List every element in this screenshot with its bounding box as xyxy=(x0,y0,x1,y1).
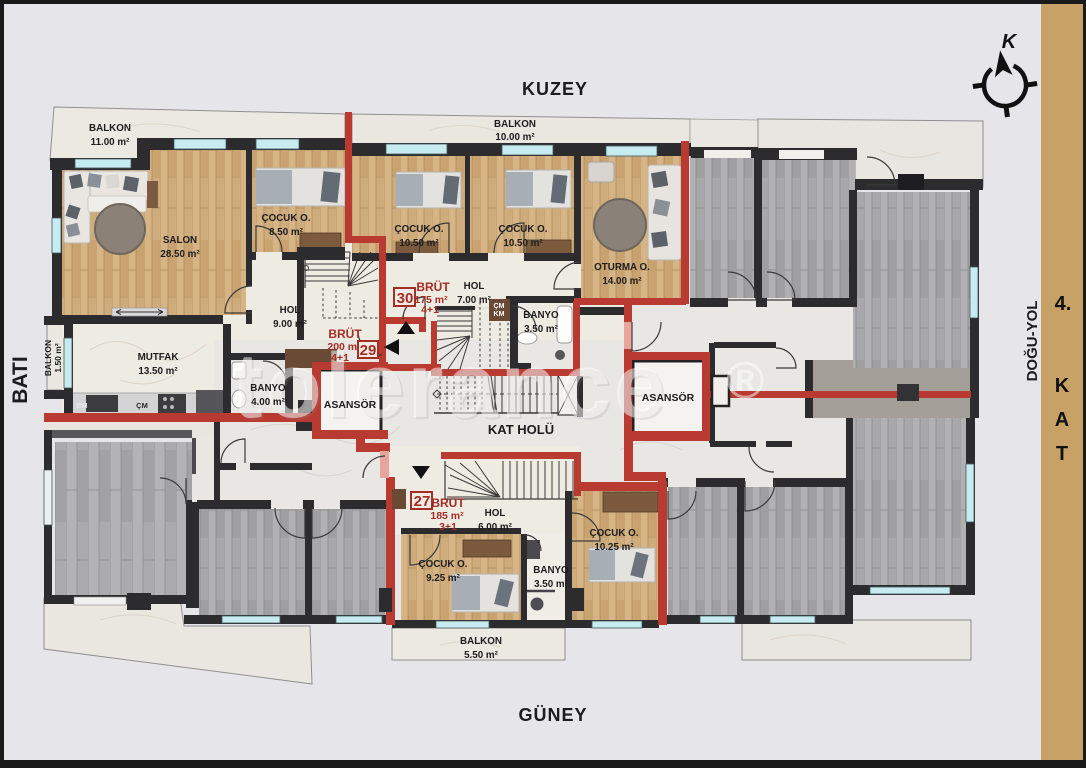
svg-text:BRÜT: BRÜT xyxy=(416,279,450,294)
svg-text:7.00 m²: 7.00 m² xyxy=(457,295,492,306)
svg-text:ÇOCUK O.: ÇOCUK O. xyxy=(419,559,468,570)
svg-text:BALKON1.50 m²: BALKON1.50 m² xyxy=(43,340,63,376)
svg-text:ÇOCUK O.: ÇOCUK O. xyxy=(262,213,311,224)
svg-text:tolerance: tolerance xyxy=(232,335,668,437)
svg-text:6.00 m²: 6.00 m² xyxy=(478,522,513,533)
svg-text:3.50 m²: 3.50 m² xyxy=(524,324,559,335)
svg-text:ÇOCUK O.: ÇOCUK O. xyxy=(395,224,444,235)
svg-text:4.00 m²: 4.00 m² xyxy=(251,397,286,408)
svg-text:SALON: SALON xyxy=(163,235,197,246)
svg-text:ASANSÖR: ASANSÖR xyxy=(642,391,695,404)
svg-text:BANYO: BANYO xyxy=(250,383,286,394)
svg-text:K: K xyxy=(1002,31,1018,53)
svg-text:T: T xyxy=(1056,443,1068,465)
svg-text:BRÜT: BRÜT xyxy=(328,326,362,341)
svg-text:8.50 m²: 8.50 m² xyxy=(269,227,304,238)
svg-text:ÇOCUK O.: ÇOCUK O. xyxy=(499,224,548,235)
svg-text:4+1: 4+1 xyxy=(421,304,439,316)
svg-text:14.00 m²: 14.00 m² xyxy=(602,276,642,287)
svg-text:GÜNEY: GÜNEY xyxy=(518,705,587,725)
svg-text:29: 29 xyxy=(360,342,377,359)
svg-text:5.50 m²: 5.50 m² xyxy=(464,650,499,661)
svg-text:10.25 m²: 10.25 m² xyxy=(594,542,634,553)
svg-text:30: 30 xyxy=(397,290,414,307)
svg-text:ÇOCUK O.: ÇOCUK O. xyxy=(590,528,639,539)
svg-text:KUZEY: KUZEY xyxy=(522,79,588,99)
svg-text:10.00 m²: 10.00 m² xyxy=(495,132,535,143)
svg-text:4+1: 4+1 xyxy=(331,352,349,364)
svg-text:A: A xyxy=(1055,409,1069,431)
svg-text:HOL: HOL xyxy=(464,281,485,292)
svg-text:10.50 m²: 10.50 m² xyxy=(503,238,543,249)
svg-text:3+1: 3+1 xyxy=(439,521,457,533)
svg-text:BANYO: BANYO xyxy=(533,565,569,576)
svg-text:4.: 4. xyxy=(1055,293,1072,315)
svg-text:ÇM: ÇM xyxy=(136,401,148,410)
svg-text:KM: KM xyxy=(494,311,505,318)
svg-text:11.00 m²: 11.00 m² xyxy=(91,137,130,148)
svg-text:HOL: HOL xyxy=(485,508,506,519)
svg-text:10.50 m²: 10.50 m² xyxy=(399,238,439,249)
svg-text:BANYO: BANYO xyxy=(523,310,559,321)
svg-text:HOL: HOL xyxy=(280,305,301,316)
svg-text:BRÜT: BRÜT xyxy=(431,495,465,510)
svg-text:BATI: BATI xyxy=(9,356,32,403)
svg-text:BALKON: BALKON xyxy=(460,636,502,647)
svg-text:BALKON: BALKON xyxy=(494,119,536,130)
svg-text:MUTFAK: MUTFAK xyxy=(138,352,179,363)
svg-text:K: K xyxy=(1055,375,1070,397)
svg-text:®: ® xyxy=(726,352,764,410)
svg-text:9.25 m²: 9.25 m² xyxy=(426,573,461,584)
svg-text:9.00 m²: 9.00 m² xyxy=(273,319,308,330)
svg-text:3.50 m²: 3.50 m² xyxy=(534,579,569,590)
svg-text:KAT HOLÜ: KAT HOLÜ xyxy=(488,422,554,437)
svg-text:DOĞU-YOL: DOĞU-YOL xyxy=(1023,301,1041,382)
svg-text:ASANSÖR: ASANSÖR xyxy=(324,398,377,411)
svg-text:ÇM: ÇM xyxy=(494,303,505,310)
svg-text:BALKON: BALKON xyxy=(89,123,131,134)
svg-text:28.50 m²: 28.50 m² xyxy=(160,249,200,260)
svg-text:BM: BM xyxy=(77,403,88,410)
svg-text:27: 27 xyxy=(414,493,431,510)
svg-text:13.50 m²: 13.50 m² xyxy=(138,366,178,377)
svg-text:OTURMA O.: OTURMA O. xyxy=(594,262,650,273)
